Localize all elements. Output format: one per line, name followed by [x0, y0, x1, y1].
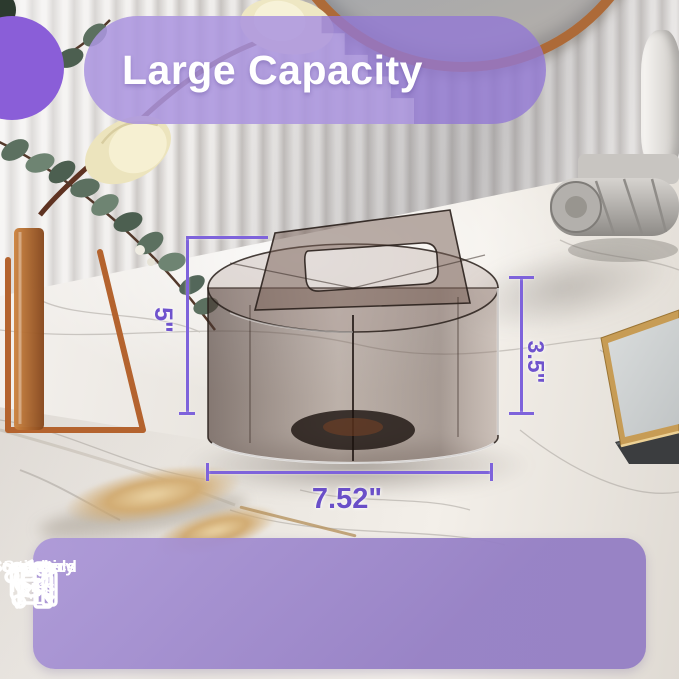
dimension-inner-height-cap-bottom — [509, 412, 534, 415]
dimension-height-cap-top — [186, 236, 268, 239]
dimension-height-line — [186, 237, 189, 415]
dimension-height-cap-bottom — [179, 412, 195, 415]
dimension-width-label: 7.52" — [277, 482, 417, 516]
dimension-width-cap-right — [490, 463, 493, 481]
dimension-inner-height-label: 3.5" — [523, 327, 549, 397]
feature-bar: Stationery Cosmetics — [33, 538, 646, 669]
product-marketing-image: 5" 3.5" 7.52" Large Capacity Stationery — [0, 0, 679, 679]
dimension-width-cap-left — [206, 463, 209, 481]
banner-title: Large Capacity — [122, 16, 423, 124]
feature-label: Snacks — [3, 557, 63, 577]
dimension-width-line — [207, 471, 493, 474]
dimension-height-label: 5" — [145, 285, 181, 355]
table-mirror — [585, 298, 679, 470]
dimension-inner-height-cap-top — [509, 276, 534, 279]
organizer-product — [140, 185, 540, 485]
banner: Large Capacity — [84, 16, 546, 124]
